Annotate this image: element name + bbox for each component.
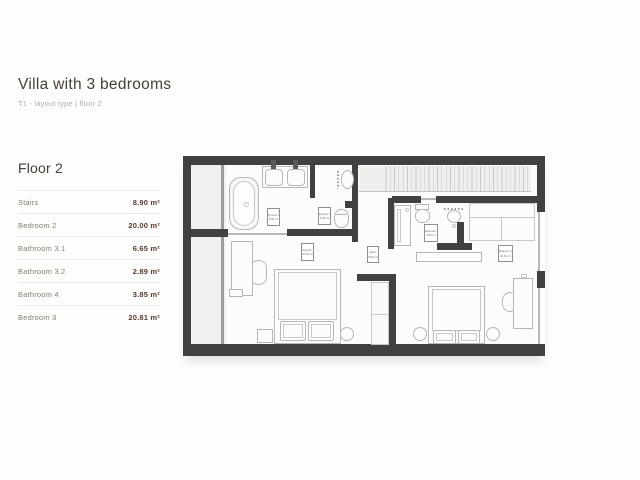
desk-b2 bbox=[231, 241, 253, 296]
window-right-1 bbox=[538, 212, 540, 271]
wall-bath4-right bbox=[457, 222, 464, 250]
glass-partition bbox=[227, 233, 287, 235]
bed-b3-mattress bbox=[432, 289, 481, 331]
room-label-bedroom-3: Bedroom 3 20.81 m² bbox=[498, 245, 513, 262]
sink32-basin bbox=[341, 170, 354, 189]
room-name: Bathroom 4 bbox=[18, 290, 59, 299]
table-row: Bathroom 3.1 6.65 m² bbox=[18, 236, 160, 259]
vanity-sink-right bbox=[287, 169, 305, 186]
room-area: 3.85 m² bbox=[133, 290, 160, 299]
shower-drain bbox=[397, 209, 401, 242]
sink32-faucet bbox=[337, 171, 339, 189]
wall-right-upper bbox=[537, 156, 545, 212]
room-area: 20.81 m² bbox=[128, 313, 160, 322]
bed-b2-mattress bbox=[278, 272, 337, 320]
room-label-bathroom-4: Bathroom 4 3.85 m² bbox=[424, 224, 438, 242]
sink4-drain bbox=[452, 224, 456, 228]
area-table: Stairs 8.90 m² Bedroom 2 20.00 m² Bathro… bbox=[18, 190, 160, 328]
table-row: Bedroom 2 20.00 m² bbox=[18, 213, 160, 236]
nightstand-b3-right bbox=[486, 327, 500, 341]
shower-head bbox=[405, 208, 409, 212]
closet-divider-line bbox=[501, 217, 502, 241]
stairs-edge-line bbox=[359, 191, 531, 192]
room-label-bathroom-32: Bathroom 3.2 2.89 m² bbox=[318, 207, 331, 225]
bathtub-drain bbox=[244, 202, 249, 207]
wall-left bbox=[183, 156, 191, 356]
bench-b2 bbox=[257, 329, 273, 343]
pocket-door bbox=[421, 198, 436, 200]
room-name: Stairs bbox=[18, 198, 38, 207]
room-name: Bedroom 3 bbox=[18, 313, 57, 322]
closet-shelf-line bbox=[469, 217, 535, 218]
wall-wardrobe-top bbox=[357, 274, 396, 281]
wall-top bbox=[183, 156, 545, 165]
wall-bath4-bottom bbox=[437, 243, 472, 250]
desk-b3-lamp bbox=[521, 274, 527, 278]
wardrobe-divider bbox=[371, 314, 389, 315]
wall-pier-sink bbox=[345, 201, 352, 208]
room-label-bathroom-31: Bathroom 3.1 6.65 m² bbox=[267, 208, 280, 226]
wall-bottom bbox=[183, 344, 545, 356]
room-label-bedroom-2: Bedroom 2 20.00 m² bbox=[301, 243, 314, 261]
room-area: 2.89 m² bbox=[133, 267, 160, 276]
wall-strip-cap bbox=[186, 229, 228, 237]
strip-partition bbox=[221, 165, 224, 344]
stairs bbox=[382, 166, 531, 192]
wall-right-pier bbox=[537, 271, 545, 288]
sink4-basin bbox=[447, 210, 461, 223]
room-area: 20.00 m² bbox=[128, 221, 160, 230]
toilet4-bowl bbox=[415, 209, 430, 223]
stairs-landing bbox=[359, 166, 382, 192]
vanity-sink-left bbox=[265, 169, 283, 186]
room-label-stairs: Stairs 8.90 m² bbox=[367, 246, 379, 263]
bed-b2-pillow-right bbox=[308, 321, 334, 341]
nightstand-b3-left bbox=[413, 327, 427, 341]
toilet32 bbox=[334, 209, 349, 228]
room-name: Bathroom 3.2 bbox=[18, 267, 65, 276]
window-right-2 bbox=[538, 288, 540, 344]
faucet-left bbox=[271, 160, 276, 169]
page: Villa with 3 bedrooms T1 - layout type |… bbox=[0, 0, 640, 480]
desk-b3 bbox=[513, 278, 533, 329]
wall-bath-bottom bbox=[287, 229, 358, 236]
floor-heading: Floor 2 bbox=[18, 160, 63, 176]
toilet32-seat-line bbox=[336, 214, 347, 215]
table-row: Bathroom 4 3.85 m² bbox=[18, 282, 160, 305]
page-subtitle: T1 - layout type | floor 2 bbox=[18, 99, 102, 108]
bed-b3-pillow-right bbox=[458, 330, 480, 344]
desk-b2-drawer bbox=[229, 289, 243, 297]
table-row: Stairs 8.90 m² bbox=[18, 190, 160, 213]
room-name: Bedroom 2 bbox=[18, 221, 57, 230]
page-title: Villa with 3 bedrooms bbox=[18, 76, 171, 94]
room-area: 8.90 m² bbox=[133, 198, 160, 207]
bed-b3-pillow-left bbox=[433, 330, 456, 344]
wall-wardrobe-side bbox=[389, 281, 396, 344]
room-name: Bathroom 3.1 bbox=[18, 244, 65, 253]
dresser bbox=[416, 252, 482, 262]
stool-b2 bbox=[340, 327, 354, 341]
wall-below-stairs-b bbox=[436, 196, 537, 203]
wall-below-stairs-a bbox=[392, 196, 421, 203]
room-area: 6.65 m² bbox=[133, 244, 160, 253]
closet bbox=[469, 203, 535, 241]
table-row: Bedroom 3 20.81 m² bbox=[18, 305, 160, 328]
wall-bath-divider bbox=[310, 165, 315, 198]
floor-plan: Bathroom 3.1 6.65 m² Bathroom 3.2 2.89 m… bbox=[183, 156, 545, 356]
faucet-right bbox=[293, 160, 298, 169]
bed-b2-pillow-left bbox=[280, 321, 306, 341]
table-row: Bathroom 3.2 2.89 m² bbox=[18, 259, 160, 282]
